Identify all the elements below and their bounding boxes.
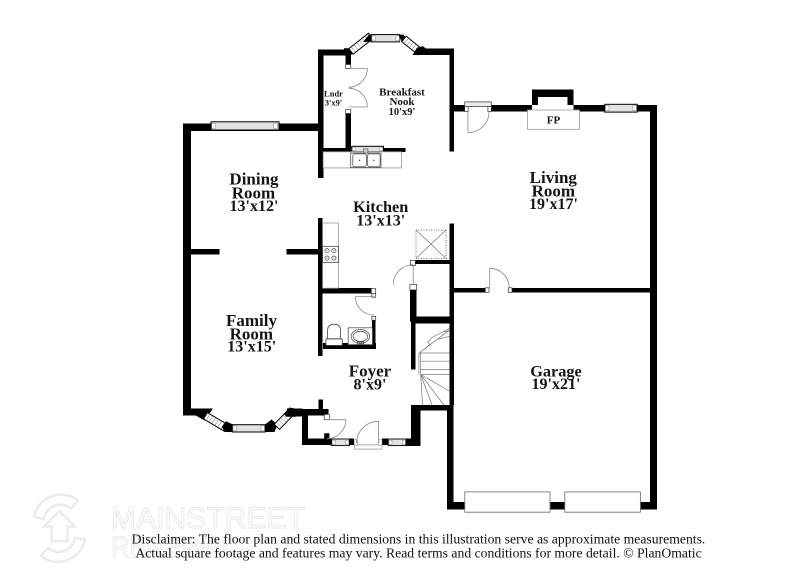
svg-text:13'x13': 13'x13' — [356, 213, 405, 230]
svg-text:FP: FP — [547, 115, 561, 127]
svg-text:19'x17': 19'x17' — [529, 196, 578, 213]
svg-text:8'x9': 8'x9' — [354, 377, 387, 394]
svg-text:13'x12': 13'x12' — [230, 198, 279, 215]
svg-text:19'x21': 19'x21' — [532, 376, 581, 393]
svg-text:13'x15': 13'x15' — [227, 338, 276, 355]
svg-text:Actual square footage and feat: Actual square footage and features may v… — [135, 546, 701, 561]
svg-text:Nook: Nook — [389, 96, 415, 108]
svg-text:3'x9': 3'x9' — [325, 98, 342, 108]
svg-text:Disclaimer: The floor plan and: Disclaimer: The floor plan and stated di… — [132, 532, 706, 547]
svg-text:10'x9': 10'x9' — [389, 107, 416, 118]
